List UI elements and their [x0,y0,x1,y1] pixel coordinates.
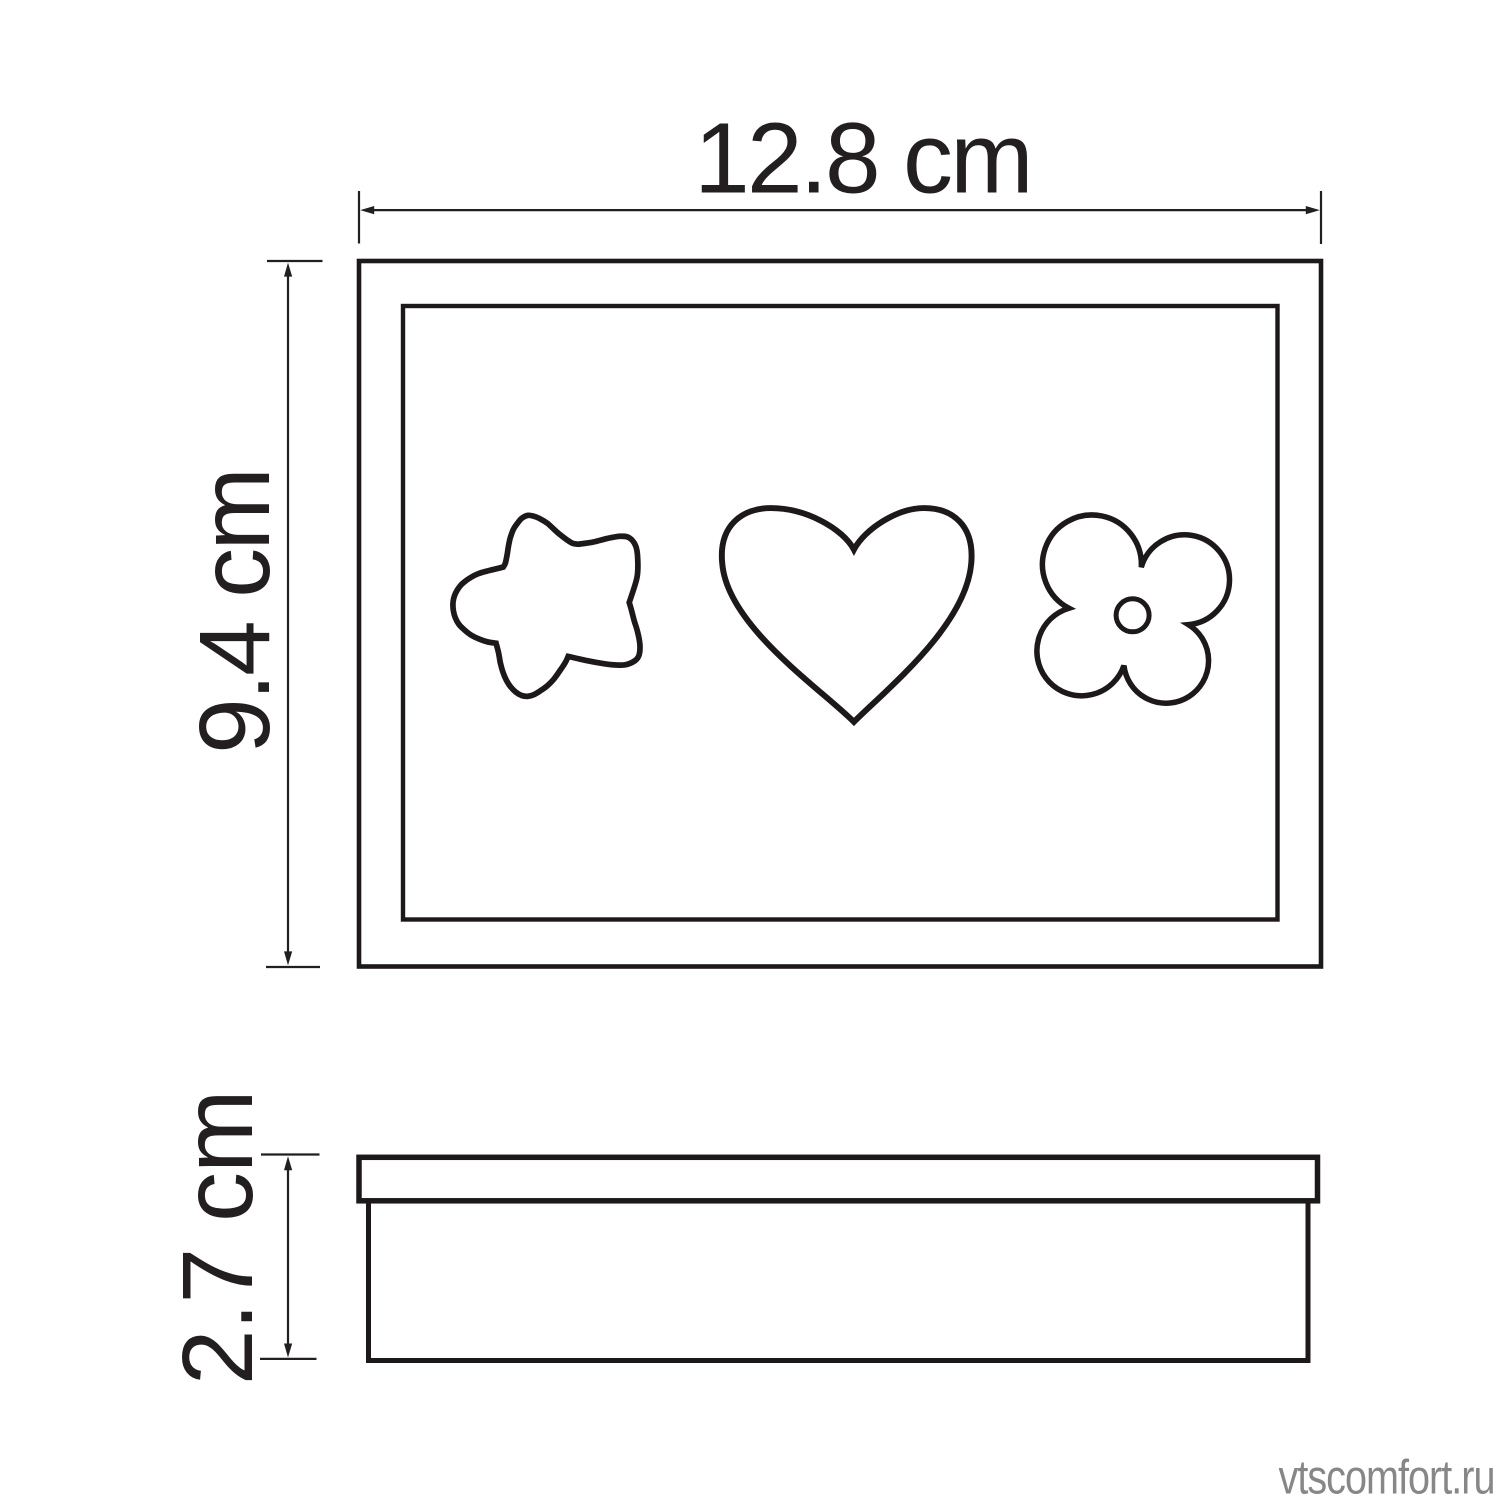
svg-text:2.7 cm: 2.7 cm [162,1090,274,1385]
svg-text:12.8 cm: 12.8 cm [694,103,1031,215]
svg-text:9.4 cm: 9.4 cm [179,470,291,754]
svg-text:vtscomfort.ru: vtscomfort.ru [1279,1451,1495,1503]
